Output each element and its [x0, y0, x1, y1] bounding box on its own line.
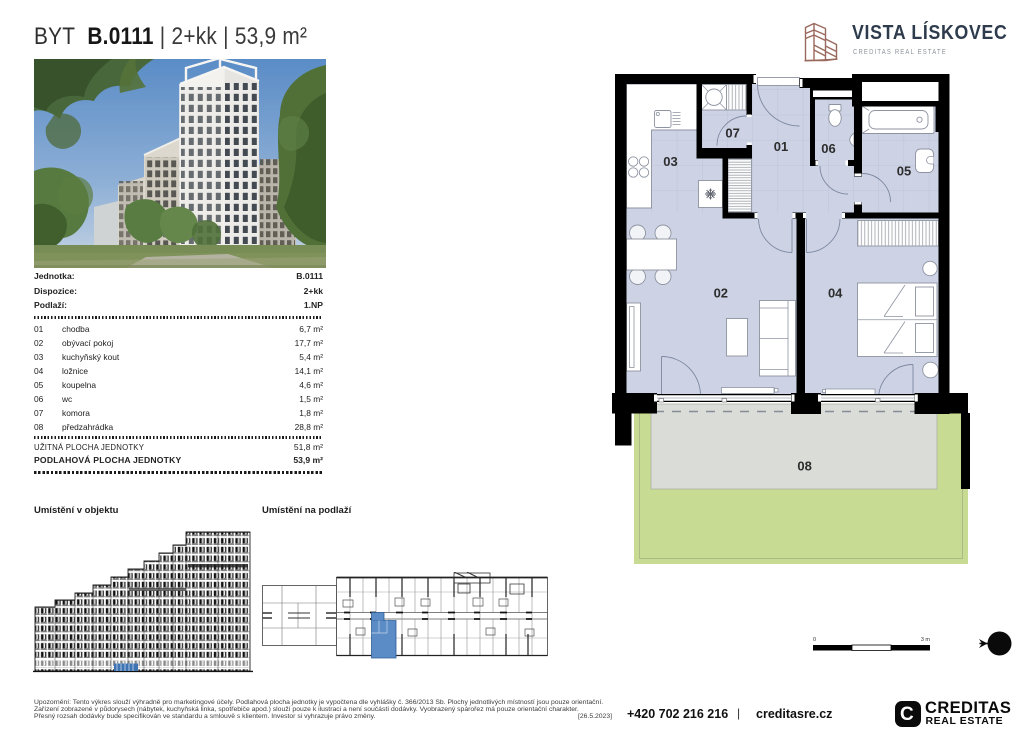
svg-text:01: 01 — [774, 139, 788, 154]
svg-text:05: 05 — [897, 164, 911, 179]
svg-text:04: 04 — [828, 285, 843, 300]
svg-text:03: 03 — [663, 154, 677, 169]
svg-text:06: 06 — [821, 141, 835, 156]
svg-text:0: 0 — [813, 637, 816, 643]
svg-text:3 m: 3 m — [921, 637, 931, 643]
svg-text:08: 08 — [797, 459, 811, 474]
svg-text:07: 07 — [725, 126, 739, 141]
svg-text:02: 02 — [714, 285, 728, 300]
